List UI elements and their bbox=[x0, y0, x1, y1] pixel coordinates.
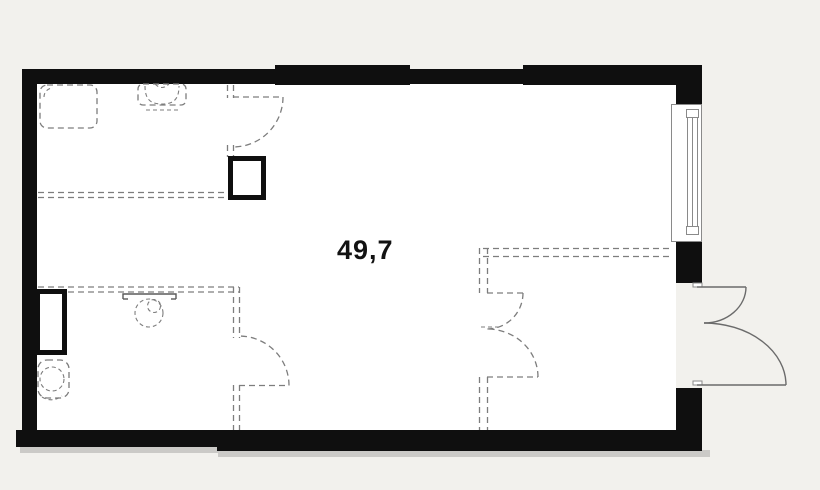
wall-right-middle bbox=[676, 235, 702, 283]
wall-bottom-left bbox=[16, 430, 217, 447]
wall-right-bottom bbox=[676, 388, 702, 451]
door-swing-large bbox=[704, 323, 786, 385]
wall-top-thick-left bbox=[275, 65, 410, 85]
wall-bottom-right bbox=[217, 430, 702, 451]
window-cap-bottom bbox=[687, 227, 699, 235]
wall-right-top bbox=[676, 65, 702, 110]
wall-top-thick-right bbox=[523, 65, 702, 85]
floor-plan: 49,7 bbox=[0, 0, 820, 490]
floor-plan-canvas: 49,7 bbox=[0, 0, 820, 490]
ventilation-shaft-top bbox=[231, 159, 264, 198]
wall-top-thin-left bbox=[22, 69, 275, 84]
wall-left bbox=[22, 69, 37, 447]
area-label: 49,7 bbox=[337, 235, 394, 265]
door-swing-small bbox=[704, 287, 746, 323]
window-cap-top bbox=[687, 110, 699, 118]
entrance-double-door bbox=[693, 283, 786, 385]
ventilation-shaft-left bbox=[38, 292, 65, 353]
wall-top-thin-right bbox=[410, 69, 523, 84]
window bbox=[672, 105, 702, 242]
